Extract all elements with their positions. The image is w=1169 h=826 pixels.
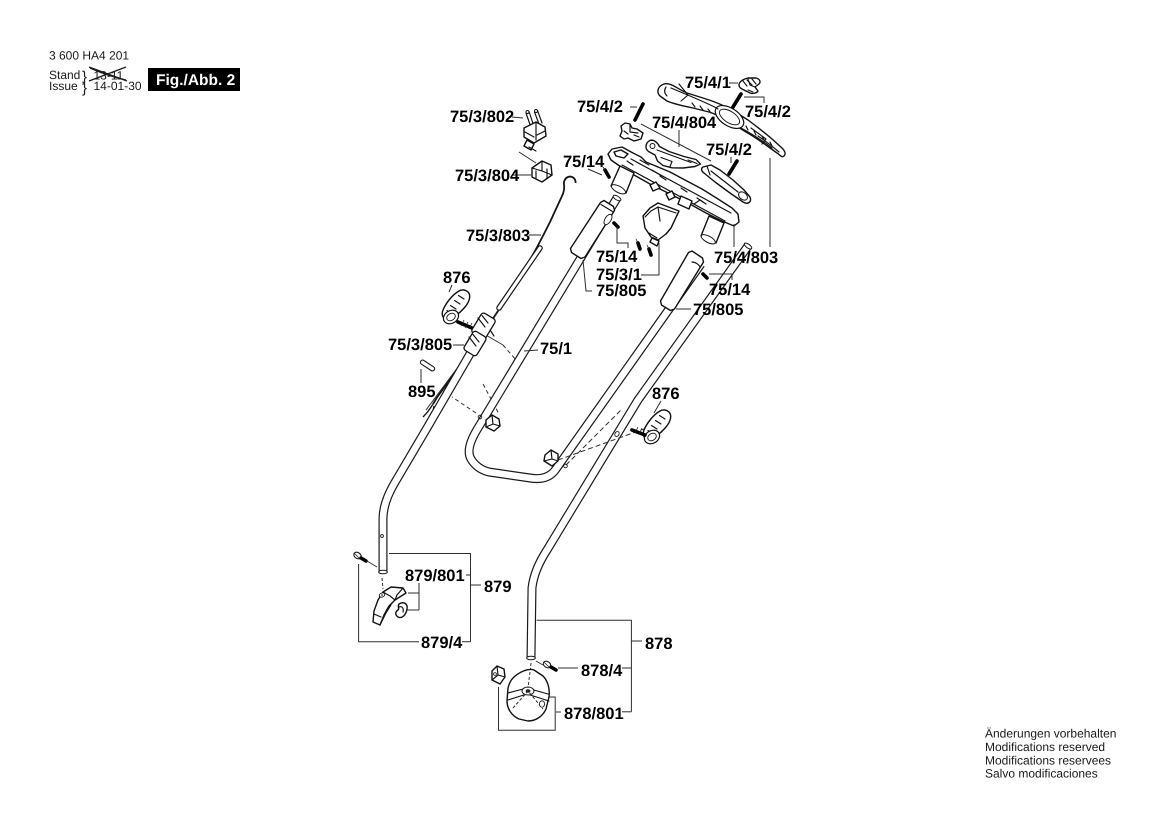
svg-text:Modifications reserved: Modifications reserved xyxy=(985,740,1105,754)
svg-text:75/14: 75/14 xyxy=(563,153,605,171)
svg-text:Fig./Abb. 2: Fig./Abb. 2 xyxy=(156,72,235,89)
svg-text:Modifications reservees: Modifications reservees xyxy=(985,753,1111,767)
svg-text:75/14: 75/14 xyxy=(709,281,751,299)
svg-text:75/14: 75/14 xyxy=(596,248,638,266)
svg-text:75/805: 75/805 xyxy=(693,301,743,319)
svg-text:876: 876 xyxy=(652,385,680,403)
svg-text:75/4/2: 75/4/2 xyxy=(577,98,623,116)
svg-text:75/1: 75/1 xyxy=(540,340,572,358)
svg-text:75/4/1: 75/4/1 xyxy=(685,74,731,92)
svg-text:14-01-30: 14-01-30 xyxy=(94,79,142,93)
svg-text:878: 878 xyxy=(645,635,673,653)
svg-text:75/4/803: 75/4/803 xyxy=(714,249,778,267)
svg-text:75/3/803: 75/3/803 xyxy=(466,227,530,245)
svg-text:75/4/2: 75/4/2 xyxy=(745,103,791,121)
svg-text:75/3/804: 75/3/804 xyxy=(455,167,520,185)
svg-text:75/3/802: 75/3/802 xyxy=(450,108,514,126)
svg-text:879/4: 879/4 xyxy=(421,634,463,652)
svg-text:75/4/804: 75/4/804 xyxy=(652,114,717,132)
svg-text:878/801: 878/801 xyxy=(564,705,624,723)
svg-text:878/4: 878/4 xyxy=(581,662,623,680)
svg-text:Änderungen vorbehalten: Änderungen vorbehalten xyxy=(985,727,1116,741)
svg-text:Issue: Issue xyxy=(49,79,78,93)
svg-text:3 600 HA4 201: 3 600 HA4 201 xyxy=(49,49,129,63)
svg-text:879/801: 879/801 xyxy=(405,567,465,585)
svg-text:75/805: 75/805 xyxy=(596,282,646,300)
svg-text:75/3/805: 75/3/805 xyxy=(388,336,452,354)
svg-text:876: 876 xyxy=(443,269,471,287)
svg-text:895: 895 xyxy=(408,383,436,401)
svg-text:75/4/2: 75/4/2 xyxy=(706,141,752,159)
svg-text:}: } xyxy=(82,80,87,97)
svg-text:Salvo modificaciones: Salvo modificaciones xyxy=(985,767,1098,781)
svg-text:879: 879 xyxy=(484,578,512,596)
